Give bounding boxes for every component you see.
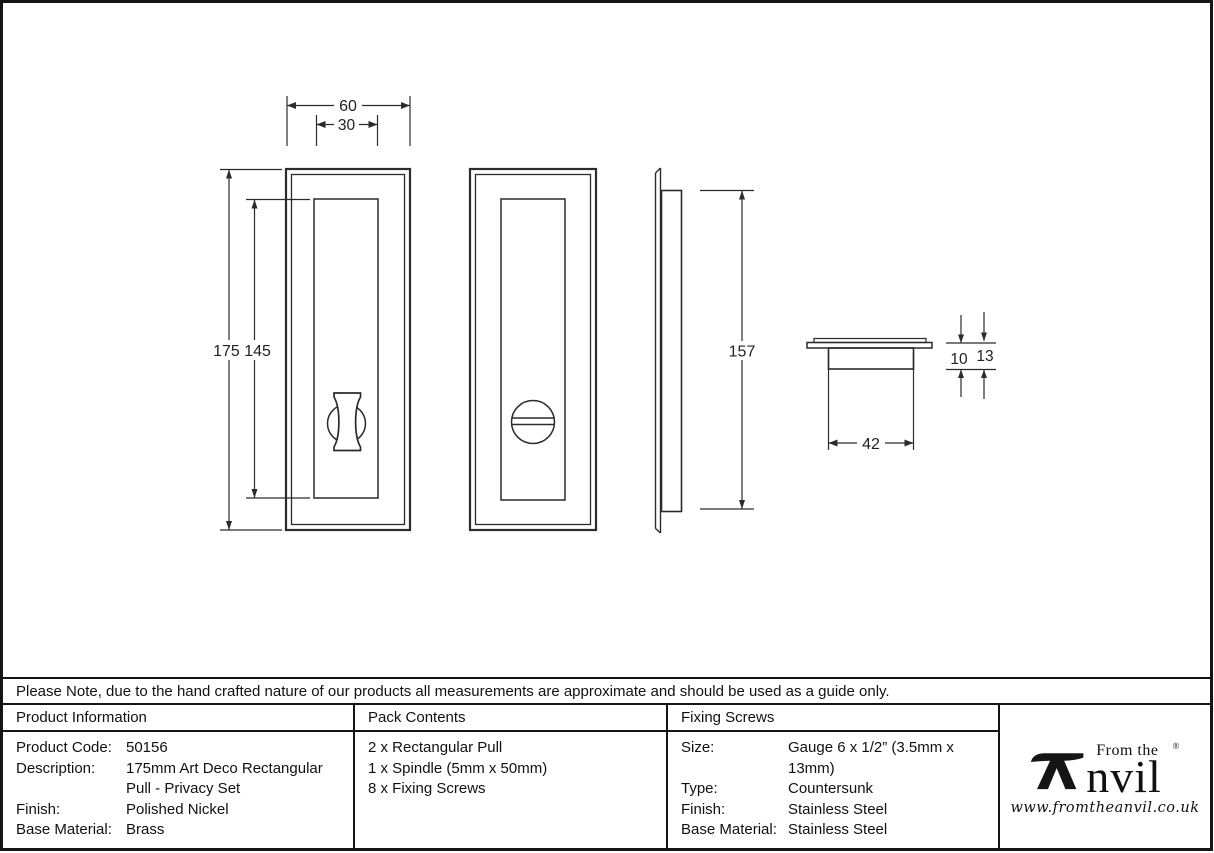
coin-turn xyxy=(512,401,555,444)
product-information-column: Product Information Product Code: 50156 … xyxy=(3,705,353,848)
fixing-screws-column: Fixing Screws Size: Gauge 6 x 1/2” (3.5m… xyxy=(668,705,998,848)
screw-type-row: Type: Countersunk xyxy=(681,779,992,800)
dimension-157: 157 xyxy=(700,191,758,510)
svg-text:60: 60 xyxy=(339,98,357,115)
svg-text:175 145: 175 145 xyxy=(213,343,271,360)
technical-drawing: 60 30 175 145 15 xyxy=(0,0,1214,679)
pack-item: 8 x Fixing Screws xyxy=(368,779,660,800)
dimension-175-145: 175 145 xyxy=(213,170,310,531)
product-information-header: Product Information xyxy=(3,705,353,730)
note-text: Please Note, due to the hand crafted nat… xyxy=(16,683,890,700)
description-row: Description: 175mm Art Deco Rectangular … xyxy=(16,759,347,800)
finish-row: Finish: Polished Nickel xyxy=(16,800,347,821)
thumbturn-knob xyxy=(334,393,361,451)
svg-text:30: 30 xyxy=(338,117,356,134)
spec-table: Product Information Product Code: 50156 … xyxy=(3,705,1210,848)
dimension-30: 30 xyxy=(317,115,378,146)
dimension-42: 42 xyxy=(829,352,914,453)
screw-size-row: Size: Gauge 6 x 1/2” (3.5mm x 13mm) xyxy=(681,738,992,779)
note-bar: Please Note, due to the hand crafted nat… xyxy=(3,677,1210,705)
pull-front-thumbturn xyxy=(286,169,410,530)
registered-mark: ® xyxy=(1158,741,1179,751)
pull-side-view xyxy=(656,168,682,533)
pack-contents-header: Pack Contents xyxy=(355,705,666,730)
pack-contents-column: Pack Contents 2 x Rectangular Pull 1 x S… xyxy=(355,705,666,848)
brand-logo: From the® nvil www.fromtheanvil.co.uk xyxy=(1000,705,1210,848)
svg-text:10: 10 xyxy=(950,351,968,368)
logo-wordmark: nvil xyxy=(1086,761,1180,793)
screw-finish-row: Finish: Stainless Steel xyxy=(681,800,992,821)
pack-item: 2 x Rectangular Pull xyxy=(368,738,660,759)
svg-text:157: 157 xyxy=(729,344,756,361)
logo-url: www.fromtheanvil.co.uk xyxy=(1010,800,1199,816)
pull-front-cointurn xyxy=(470,169,596,530)
base-material-row: Base Material: Brass xyxy=(16,820,347,841)
fixing-screws-header: Fixing Screws xyxy=(668,705,998,730)
svg-text:42: 42 xyxy=(862,436,880,453)
svg-text:13: 13 xyxy=(976,348,993,365)
pack-item: 1 x Spindle (5mm x 50mm) xyxy=(368,759,660,780)
product-code-row: Product Code: 50156 xyxy=(16,738,347,759)
dimension-10-13: 10 13 xyxy=(946,312,996,399)
screw-base-material-row: Base Material: Stainless Steel xyxy=(681,820,992,841)
anvil-icon xyxy=(1030,745,1086,793)
